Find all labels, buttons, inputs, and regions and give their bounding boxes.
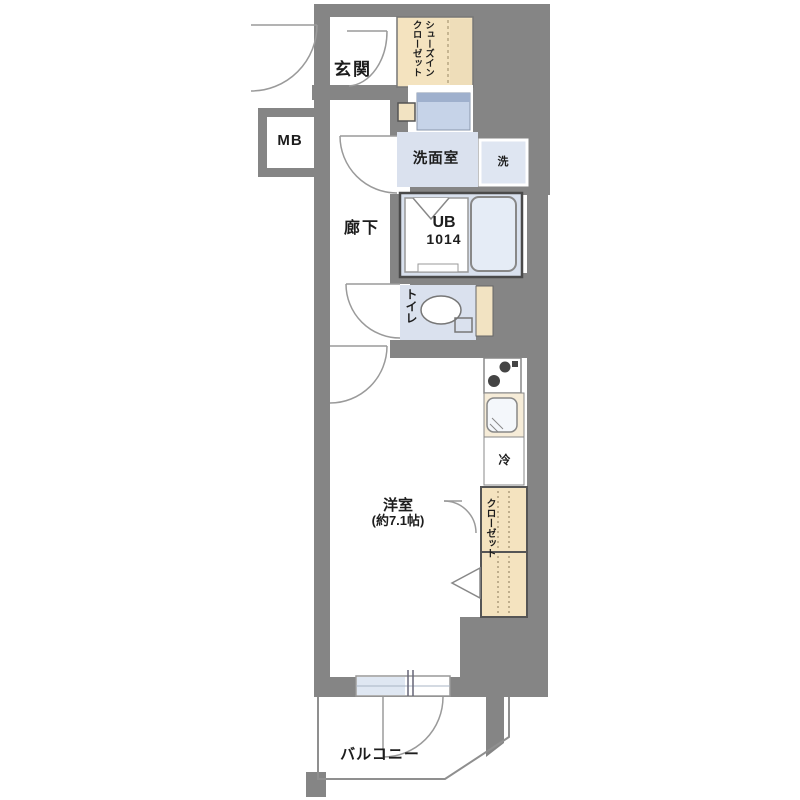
wall-balcony-corner-block — [306, 772, 326, 797]
wall-balcony-column — [486, 697, 504, 757]
wall-left — [314, 17, 330, 697]
closet-door-arc — [444, 501, 476, 533]
hallway-label: 廊下 — [338, 218, 386, 240]
bath-step — [418, 264, 458, 272]
toilet-shelf — [476, 286, 493, 336]
western-room-label-line2: (約7.1帖) — [372, 514, 425, 529]
sink — [487, 398, 517, 432]
balcony-outline — [318, 697, 509, 779]
closet-folding-door — [452, 568, 480, 598]
wall-bottom-right-block — [460, 617, 548, 697]
unit-bath-label-line2: 1014 — [426, 232, 461, 247]
shoe-closet-shelf — [450, 19, 472, 85]
floorplan-page: 玄関 シューズイン クローゼット MB 洗面室 洗 UB 1014 廊下 トイレ… — [0, 0, 800, 800]
stove-control — [512, 361, 518, 367]
vanity-counter-edge — [417, 93, 470, 102]
balcony-label: バルコニー — [330, 745, 430, 765]
wall-mb-top — [258, 108, 316, 117]
stove-burner-2 — [488, 375, 500, 387]
wall-top — [314, 4, 477, 17]
vanity-cabinet — [398, 103, 415, 121]
wall-mb-bottom — [258, 168, 316, 177]
unit-bath-label: UB 1014 — [418, 211, 470, 251]
shoe-closet-label: シューズイン クローゼット — [404, 20, 434, 84]
entrance-label: 玄関 — [328, 59, 378, 81]
unit-bath-label-line1: UB — [432, 215, 455, 232]
wall-room-top — [390, 340, 548, 358]
western-room-label-line1: 洋室 — [383, 497, 413, 514]
western-room-label: 洋室 (約7.1帖) — [348, 492, 448, 534]
closet-label: クローゼット — [479, 498, 495, 602]
floorplan-drawing — [0, 0, 800, 800]
entrance-door-arc — [251, 25, 317, 91]
meter-box-label: MB — [272, 131, 308, 151]
vanity-area — [398, 85, 473, 132]
refrigerator-label: 冷 — [496, 452, 513, 469]
wall-mb-left — [258, 108, 267, 177]
washroom-label: 洗面室 — [403, 150, 469, 168]
bathtub — [471, 197, 516, 271]
washer-label: 洗 — [494, 155, 512, 170]
toilet-label: トイレ — [401, 288, 417, 342]
stove-burner-1 — [500, 362, 511, 373]
wall-genkan-bottom — [312, 85, 397, 100]
